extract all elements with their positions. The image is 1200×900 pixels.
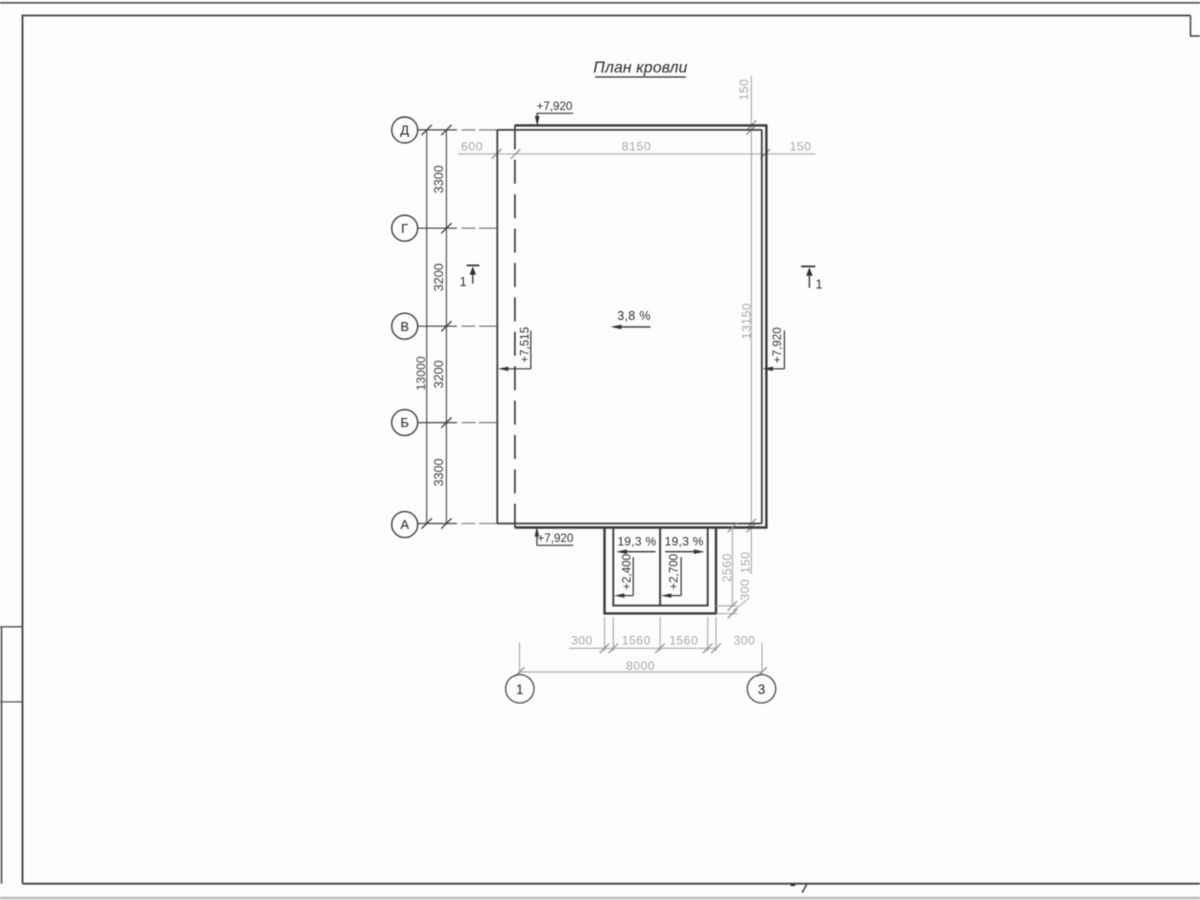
- svg-text:3200: 3200: [432, 360, 446, 388]
- svg-text:1: 1: [516, 682, 524, 697]
- svg-text:+7,920: +7,920: [537, 100, 573, 113]
- svg-text:План кровли: План кровли: [593, 60, 687, 77]
- svg-text:2560: 2560: [720, 553, 734, 582]
- svg-text:1: 1: [460, 275, 467, 289]
- svg-text:600: 600: [461, 139, 483, 153]
- svg-text:Д: Д: [400, 123, 409, 138]
- svg-text:300: 300: [733, 634, 755, 648]
- svg-text:150: 150: [738, 551, 752, 573]
- svg-text:3: 3: [758, 682, 766, 697]
- svg-text:+2,700: +2,700: [667, 554, 680, 590]
- svg-text:3300: 3300: [432, 458, 446, 486]
- svg-text:3300: 3300: [432, 165, 446, 193]
- svg-text:1560: 1560: [622, 634, 651, 648]
- svg-text:3200: 3200: [432, 263, 446, 291]
- svg-text:Б: Б: [400, 415, 409, 430]
- svg-text:+7,515: +7,515: [519, 327, 532, 363]
- svg-text:А: А: [400, 517, 409, 532]
- svg-text:+7,920: +7,920: [771, 327, 784, 363]
- svg-text:19,3 %: 19,3 %: [617, 534, 656, 548]
- svg-text:150: 150: [790, 139, 812, 153]
- svg-text:+2,400: +2,400: [620, 554, 633, 590]
- svg-text:3,8 %: 3,8 %: [617, 309, 650, 323]
- svg-text:Г: Г: [401, 221, 408, 236]
- svg-text:1: 1: [816, 277, 823, 291]
- svg-text:+7,920: +7,920: [538, 532, 574, 545]
- svg-text:13000: 13000: [414, 356, 428, 391]
- svg-text:1560: 1560: [669, 634, 698, 648]
- svg-text:13150: 13150: [739, 303, 753, 339]
- svg-text:300: 300: [571, 634, 593, 648]
- svg-text:150: 150: [737, 79, 751, 101]
- svg-text:300: 300: [738, 579, 752, 601]
- svg-text:8150: 8150: [622, 139, 652, 153]
- svg-text:8000: 8000: [626, 659, 655, 673]
- svg-text:19,3 %: 19,3 %: [665, 534, 704, 548]
- svg-text:В: В: [400, 319, 409, 334]
